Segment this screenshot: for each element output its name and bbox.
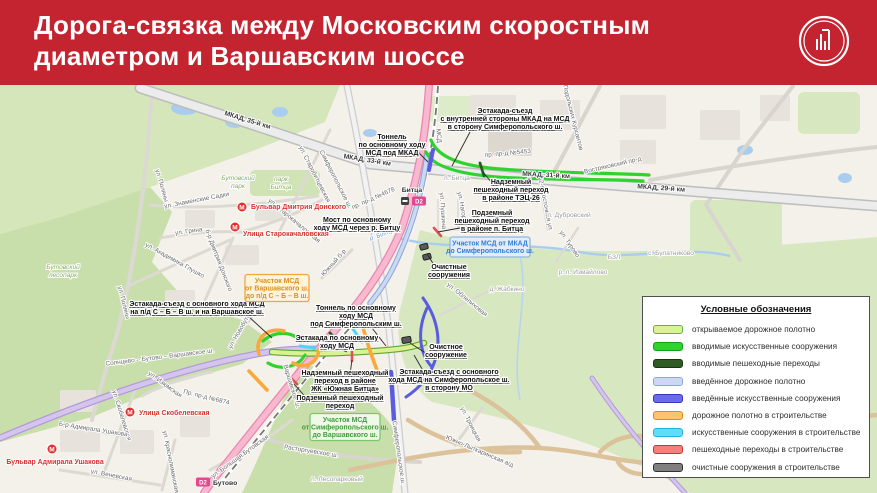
map-label: с. Булатниково (648, 250, 694, 257)
legend-color-chip (653, 359, 683, 368)
legend-item-label: вводимые пешеходные переходы (692, 359, 820, 368)
map-label: лесопарк (48, 272, 78, 279)
legend-item: дорожное полотно в строительстве (653, 407, 859, 424)
page-title-line1: Дорога-связка между Московским скоростны… (34, 10, 650, 41)
legend-item-label: очистные сооружения в строительстве (692, 463, 840, 472)
legend-item: введённые искусственные сооружения (653, 390, 859, 407)
legend-item: искусственные сооружения в строительстве (653, 424, 859, 441)
svg-text:М: М (232, 224, 237, 231)
legend: Условные обозначения открываемое дорожно… (642, 296, 870, 478)
section-label-text: Участок МСД от МКАДдо Симферопольского ш… (446, 241, 534, 256)
slide: Дорога-связка между Московским скоростны… (0, 0, 877, 493)
legend-color-chip (653, 463, 683, 472)
legend-item: очистные сооружения в строительстве (653, 459, 859, 476)
header: Дорога-связка между Московским скоростны… (0, 0, 877, 85)
metro-station-icon: М (230, 222, 240, 232)
railway-station-icon (401, 197, 409, 205)
legend-item: введённое дорожное полотно (653, 373, 859, 390)
legend-color-chip (653, 394, 683, 403)
metro-station-icon: М (47, 444, 57, 454)
legend-item-label: введённое дорожное полотно (692, 377, 805, 386)
legend-color-chip (653, 445, 683, 454)
legend-item: вводимые пешеходные переходы (653, 355, 859, 372)
legend-item-label: искусственные сооружения в строительстве (692, 428, 860, 437)
svg-text:D2: D2 (415, 199, 423, 205)
d2-station-label: Битца (402, 187, 423, 194)
legend-item-label: вводимые искусственные сооружения (692, 342, 837, 351)
legend-item-label: пешеходные переходы в строительстве (692, 445, 843, 454)
d2-line-badge: D2 (196, 478, 210, 487)
map-callout: Эстакада-съезд с основного хода МСДна п/… (129, 301, 264, 316)
d2-line-badge: D2 (412, 197, 426, 206)
map-label: р. п. Измайлово (559, 268, 608, 276)
legend-items: открываемое дорожное полотновводимые иск… (653, 321, 859, 476)
metro-station-label: Бульвар Дмитрия Донского (251, 204, 346, 211)
metro-station-label: Улица Скобелевская (139, 409, 209, 417)
legend-item: открываемое дорожное полотно (653, 321, 859, 338)
map-label: парк (231, 183, 246, 190)
map-callout: Мост по основномуходу МСД через р. Битцу (314, 217, 401, 232)
svg-text:D2: D2 (199, 480, 207, 486)
page-title: Дорога-связка между Московским скоростны… (34, 10, 650, 72)
legend-item-label: дорожное полотно в строительстве (692, 411, 827, 420)
map-label: Бутовский (46, 263, 80, 271)
map-label: Битца (271, 184, 292, 191)
metro-station-label: Улица Старокачаловская (243, 231, 329, 238)
svg-text:М: М (127, 409, 132, 416)
legend-color-chip (653, 411, 683, 420)
map-label: п. Лесопарковый (311, 475, 363, 483)
map-label: п. Дубровский (547, 211, 591, 219)
metro-station-icon: М (237, 202, 247, 212)
legend-color-chip (653, 377, 683, 386)
map-label: парк (274, 176, 289, 183)
map-callout: Очистныесооружения (428, 264, 470, 279)
svg-text:М: М (49, 446, 54, 453)
legend-color-chip (653, 325, 683, 334)
map-label: д. Жабкино (490, 285, 525, 293)
svg-text:М: М (239, 204, 244, 211)
d2-station-label: Бутово (213, 480, 237, 487)
legend-item: пешеходные переходы в строительстве (653, 441, 859, 458)
map-label: БЗЛ (608, 254, 621, 261)
metro-station-label: Бульвар Адмирала Ушакова (6, 459, 103, 466)
map-label: Бутовский (221, 174, 255, 182)
map-label: п. Битца (444, 175, 470, 182)
legend-color-chip (653, 342, 683, 351)
organization-logo-icon (797, 14, 851, 73)
metro-station-icon: М (125, 407, 135, 417)
map-callout: Надземный пешеходныйпереход в районеЖК «… (302, 369, 389, 393)
map-callout: Очистноесооружение (425, 344, 467, 359)
legend-color-chip (653, 428, 683, 437)
legend-item-label: открываемое дорожное полотно (692, 325, 815, 334)
page-title-line2: диаметром и Варшавским шоссе (34, 41, 650, 72)
legend-item-label: введённые искусственные сооружения (692, 394, 840, 403)
legend-title: Условные обозначения (653, 304, 859, 315)
legend-item: вводимые искусственные сооружения (653, 338, 859, 355)
